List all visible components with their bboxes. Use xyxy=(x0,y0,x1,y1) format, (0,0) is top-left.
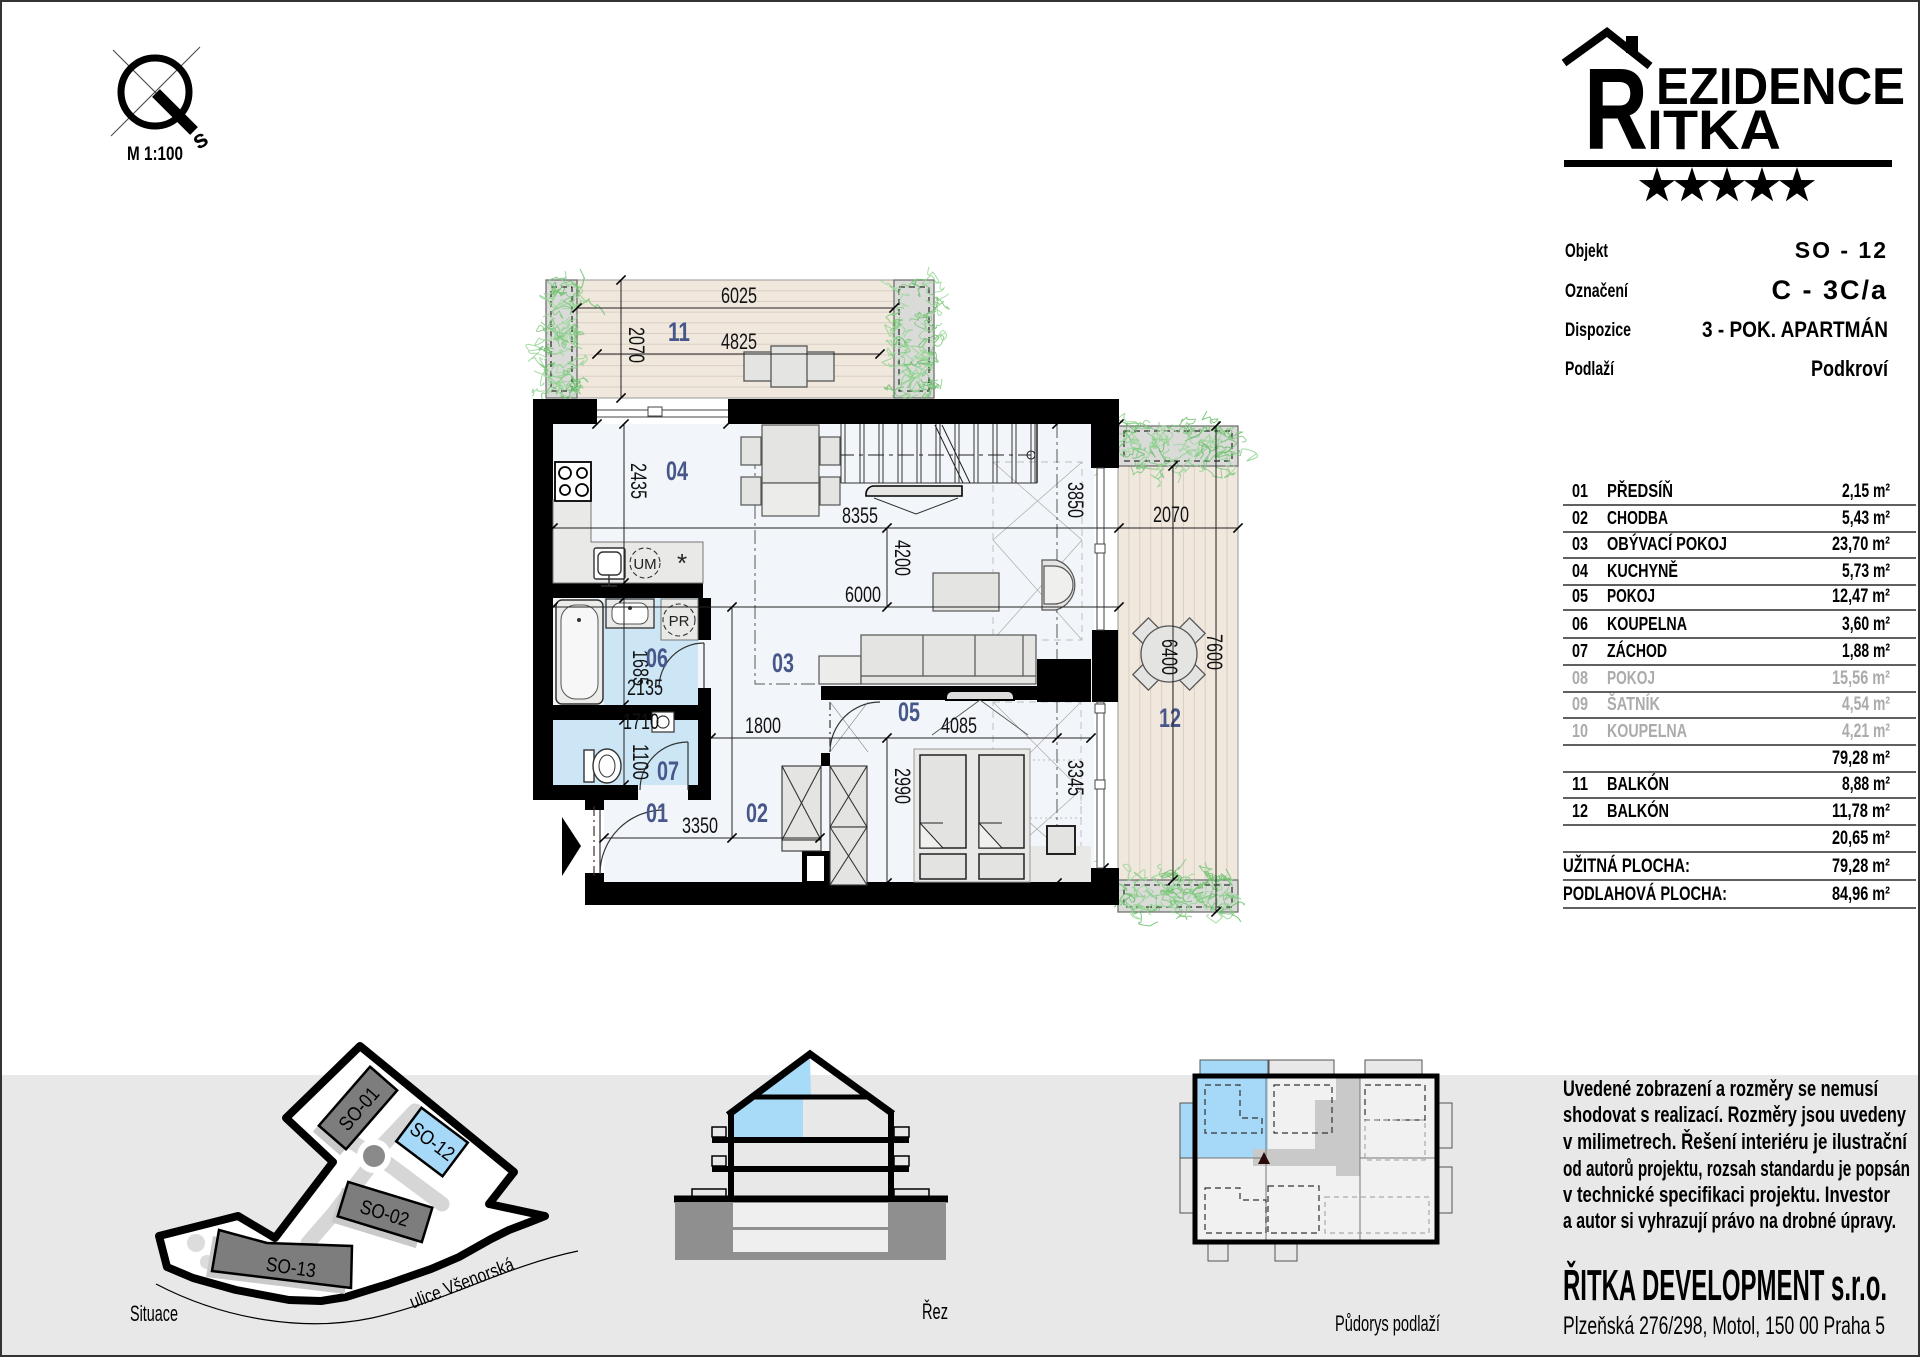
svg-text:04: 04 xyxy=(666,456,688,486)
svg-text:1,88 m²: 1,88 m² xyxy=(1842,641,1890,662)
svg-text:79,28 m²: 79,28 m² xyxy=(1832,856,1890,877)
svg-text:01: 01 xyxy=(1572,481,1588,501)
svg-text:v milimetrech. Řešení interiér: v milimetrech. Řešení interiéru je ilust… xyxy=(1563,1129,1908,1154)
svg-text:3 - POK. APARTMÁN: 3 - POK. APARTMÁN xyxy=(1702,317,1888,342)
svg-text:6000: 6000 xyxy=(845,582,881,607)
svg-text:11: 11 xyxy=(1572,774,1588,794)
svg-text:07: 07 xyxy=(1572,641,1588,661)
svg-text:PŘEDSÍŇ: PŘEDSÍŇ xyxy=(1607,480,1673,501)
svg-text:ŘITKA DEVELOPMENT s.r.o.: ŘITKA DEVELOPMENT s.r.o. xyxy=(1563,1260,1887,1310)
svg-text:a autor si vyhrazují právo na: a autor si vyhrazují právo na drobné úpr… xyxy=(1563,1208,1896,1233)
svg-text:Podkroví: Podkroví xyxy=(1811,356,1889,381)
svg-text:1100: 1100 xyxy=(628,744,653,780)
svg-text:2990: 2990 xyxy=(890,768,915,804)
svg-text:Plzeňská 276/298, Motol, 150 0: Plzeňská 276/298, Motol, 150 00 Praha 5 xyxy=(1563,1312,1885,1340)
svg-text:5,73 m²: 5,73 m² xyxy=(1842,561,1890,582)
svg-text:11: 11 xyxy=(668,317,690,347)
svg-text:BALKÓN: BALKÓN xyxy=(1607,800,1669,821)
svg-text:2135: 2135 xyxy=(627,675,663,700)
svg-text:ITKA: ITKA xyxy=(1647,98,1781,161)
svg-text:4085: 4085 xyxy=(941,713,977,738)
svg-text:3850: 3850 xyxy=(1063,482,1088,518)
svg-text:6400: 6400 xyxy=(1157,639,1182,675)
svg-text:KOUPELNA: KOUPELNA xyxy=(1607,614,1687,634)
svg-text:1800: 1800 xyxy=(745,713,781,738)
svg-text:03: 03 xyxy=(772,648,794,678)
svg-text:UŽITNÁ PLOCHA:: UŽITNÁ PLOCHA: xyxy=(1563,855,1690,877)
svg-text:Označení: Označení xyxy=(1565,281,1629,302)
svg-text:03: 03 xyxy=(1572,534,1588,554)
svg-text:PR: PR xyxy=(669,613,690,630)
svg-text:R: R xyxy=(1584,44,1648,174)
svg-text:Situace: Situace xyxy=(130,1301,178,1326)
svg-text:04: 04 xyxy=(1572,561,1588,581)
svg-text:05: 05 xyxy=(1572,586,1588,606)
svg-text:20,65 m²: 20,65 m² xyxy=(1832,828,1890,849)
svg-text:3345: 3345 xyxy=(1063,760,1088,796)
svg-text:Uvedené zobrazení a rozměry se: Uvedené zobrazení a rozměry se nemusí xyxy=(1563,1076,1879,1101)
svg-text:Řez: Řez xyxy=(922,1299,948,1324)
svg-text:4200: 4200 xyxy=(890,540,915,576)
svg-text:BALKÓN: BALKÓN xyxy=(1607,773,1669,794)
svg-text:POKOJ: POKOJ xyxy=(1607,586,1655,606)
svg-text:6025: 6025 xyxy=(721,283,757,308)
svg-text:7600: 7600 xyxy=(1202,634,1227,670)
svg-text:12: 12 xyxy=(1159,703,1181,733)
svg-text:SO - 12: SO - 12 xyxy=(1795,237,1888,263)
svg-text:v technické specifikaci projek: v technické specifikaci projektu. Invest… xyxy=(1563,1182,1890,1207)
svg-text:ŠATNÍK: ŠATNÍK xyxy=(1607,693,1660,714)
svg-text:3,60 m²: 3,60 m² xyxy=(1842,614,1890,635)
svg-text:4825: 4825 xyxy=(721,329,757,354)
svg-text:2070: 2070 xyxy=(1153,502,1189,527)
svg-text:2,15 m²: 2,15 m² xyxy=(1842,481,1890,502)
svg-text:8,88 m²: 8,88 m² xyxy=(1842,774,1890,795)
svg-text:05: 05 xyxy=(898,697,920,727)
svg-text:ZÁCHOD: ZÁCHOD xyxy=(1607,640,1667,661)
svg-text:KUCHYNĚ: KUCHYNĚ xyxy=(1607,560,1678,581)
svg-text:2435: 2435 xyxy=(626,463,651,499)
svg-text:02: 02 xyxy=(1572,508,1588,528)
svg-text:12: 12 xyxy=(1572,801,1588,821)
svg-text:UM: UM xyxy=(633,556,656,573)
svg-text:OBÝVACÍ POKOJ: OBÝVACÍ POKOJ xyxy=(1607,533,1727,554)
svg-text:23,70 m²: 23,70 m² xyxy=(1832,534,1890,555)
svg-text:Objekt: Objekt xyxy=(1565,241,1608,262)
svg-text:od autorů projektu, rozsah sta: od autorů projektu, rozsah standardu je … xyxy=(1563,1156,1910,1181)
svg-text:M 1:100: M 1:100 xyxy=(127,144,183,165)
svg-text:07: 07 xyxy=(657,756,679,786)
svg-text:02: 02 xyxy=(746,798,768,828)
svg-text:C - 3C/a: C - 3C/a xyxy=(1771,275,1888,305)
svg-text:01: 01 xyxy=(646,798,668,828)
svg-text:08: 08 xyxy=(1572,668,1588,688)
svg-text:2070: 2070 xyxy=(624,327,649,363)
svg-text:1710: 1710 xyxy=(623,709,659,734)
svg-text:84,96 m²: 84,96 m² xyxy=(1832,884,1890,905)
svg-text:*: * xyxy=(677,548,687,578)
svg-text:8355: 8355 xyxy=(842,503,878,528)
svg-text:12,47 m²: 12,47 m² xyxy=(1832,586,1890,607)
svg-text:3350: 3350 xyxy=(682,813,718,838)
svg-text:POKOJ: POKOJ xyxy=(1607,668,1655,688)
svg-text:15,56 m²: 15,56 m² xyxy=(1832,668,1890,689)
svg-text:09: 09 xyxy=(1572,694,1588,714)
svg-text:4,21 m²: 4,21 m² xyxy=(1842,721,1890,742)
svg-text:KOUPELNA: KOUPELNA xyxy=(1607,721,1687,741)
svg-text:PODLAHOVÁ PLOCHA:: PODLAHOVÁ PLOCHA: xyxy=(1563,883,1727,905)
svg-text:10: 10 xyxy=(1572,721,1588,741)
svg-text:shodovat s realizací. Rozměry: shodovat s realizací. Rozměry jsou uvede… xyxy=(1563,1102,1907,1127)
svg-text:Dispozice: Dispozice xyxy=(1565,320,1631,341)
svg-text:4,54 m²: 4,54 m² xyxy=(1842,694,1890,715)
svg-text:11,78 m²: 11,78 m² xyxy=(1832,801,1890,822)
svg-text:CHODBA: CHODBA xyxy=(1607,508,1668,528)
svg-text:06: 06 xyxy=(646,643,668,673)
svg-text:06: 06 xyxy=(1572,614,1588,634)
svg-text:5,43 m²: 5,43 m² xyxy=(1842,508,1890,529)
svg-text:79,28 m²: 79,28 m² xyxy=(1832,748,1890,769)
svg-text:Podlaží: Podlaží xyxy=(1565,359,1615,380)
svg-text:Půdorys podlaží: Půdorys podlaží xyxy=(1335,1311,1440,1336)
